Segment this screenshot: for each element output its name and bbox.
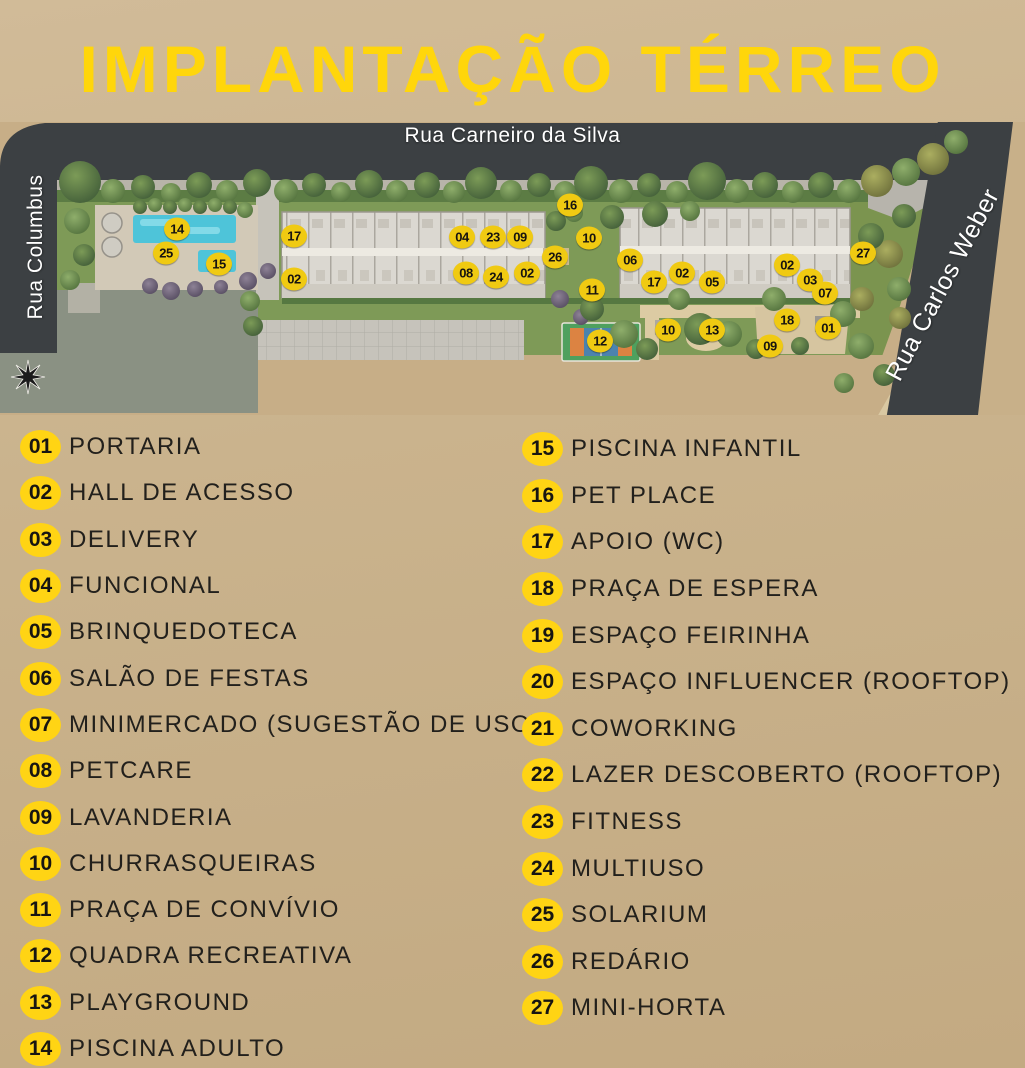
legend-item-14: 14PISCINA ADULTO [20, 1026, 541, 1068]
legend-item-27: 27MINI-HORTA [522, 985, 1011, 1032]
legend-label-24: MULTIUSO [571, 855, 705, 883]
legend-label-18: PRAÇA DE ESPERA [571, 575, 819, 603]
legend-label-03: DELIVERY [69, 526, 199, 554]
legend-label-07: MINIMERCADO (SUGESTÃO DE USO) [69, 711, 541, 739]
map-marker-17: 17 [281, 225, 307, 248]
legend-label-17: APOIO (WC) [571, 528, 725, 556]
legend-badge-07: 07 [20, 708, 61, 742]
legend-badge-16: 16 [522, 479, 563, 513]
legend-label-04: FUNCIONAL [69, 572, 221, 600]
legend-badge-05: 05 [20, 615, 61, 649]
legend-badge-04: 04 [20, 569, 61, 603]
legend-label-02: HALL DE ACESSO [69, 479, 295, 507]
legend-item-18: 18PRAÇA DE ESPERA [522, 566, 1011, 613]
map-marker-02: 02 [774, 254, 800, 277]
legend-badge-20: 20 [522, 665, 563, 699]
map-marker-16: 16 [557, 194, 583, 217]
legend-item-07: 07MINIMERCADO (SUGESTÃO DE USO) [20, 702, 541, 748]
legend-item-10: 10CHURRASQUEIRAS [20, 841, 541, 887]
legend-item-09: 09LAVANDERIA [20, 794, 541, 840]
legend-label-27: MINI-HORTA [571, 994, 726, 1022]
legend-item-06: 06SALÃO DE FESTAS [20, 655, 541, 701]
legend-badge-09: 09 [20, 801, 61, 835]
legend-item-15: 15PISCINA INFANTIL [522, 426, 1011, 473]
legend-item-04: 04FUNCIONAL [20, 563, 541, 609]
legend-badge-11: 11 [20, 893, 61, 927]
legend-label-23: FITNESS [571, 808, 683, 836]
legend-item-03: 03DELIVERY [20, 517, 541, 563]
legend-badge-15: 15 [522, 432, 563, 466]
legend-item-22: 22LAZER DESCOBERTO (ROOFTOP) [522, 752, 1011, 799]
legend-badge-01: 01 [20, 430, 61, 464]
legend-badge-18: 18 [522, 572, 563, 606]
legend-badge-13: 13 [20, 986, 61, 1020]
legend-label-11: PRAÇA DE CONVÍVIO [69, 896, 340, 924]
legend-label-05: BRINQUEDOTECA [69, 618, 298, 646]
legend-item-17: 17APOIO (WC) [522, 519, 1011, 566]
legend-item-19: 19ESPAÇO FEIRINHA [522, 612, 1011, 659]
legend-label-01: PORTARIA [69, 433, 201, 461]
legend-label-12: QUADRA RECREATIVA [69, 942, 352, 970]
map-marker-09: 09 [757, 335, 783, 358]
legend-badge-06: 06 [20, 662, 61, 696]
map-marker-14: 14 [164, 218, 190, 241]
legend-badge-27: 27 [522, 991, 563, 1025]
legend-badge-08: 08 [20, 754, 61, 788]
map-marker-25: 25 [153, 242, 179, 265]
map-marker-10: 10 [655, 319, 681, 342]
map-marker-02: 02 [281, 268, 307, 291]
map-marker-17: 17 [641, 271, 667, 294]
map-markers-layer: 1425151702042309082402161026061117020502… [0, 122, 1025, 415]
map-marker-18: 18 [774, 309, 800, 332]
legend-badge-25: 25 [522, 898, 563, 932]
legend-label-09: LAVANDERIA [69, 804, 233, 832]
legend-item-23: 23FITNESS [522, 799, 1011, 846]
legend-badge-02: 02 [20, 476, 61, 510]
legend-item-26: 26REDÁRIO [522, 939, 1011, 986]
legend-column-left: 01PORTARIA02HALL DE ACESSO03DELIVERY04FU… [20, 424, 541, 1068]
legend-badge-03: 03 [20, 523, 61, 557]
legend-label-14: PISCINA ADULTO [69, 1035, 285, 1063]
page-title: IMPLANTAÇÃO TÉRREO [0, 36, 1025, 102]
legend-label-13: PLAYGROUND [69, 989, 250, 1017]
legend-badge-17: 17 [522, 525, 563, 559]
legend-item-20: 20ESPAÇO INFLUENCER (ROOFTOP) [522, 659, 1011, 706]
legend-label-06: SALÃO DE FESTAS [69, 665, 310, 693]
legend-label-22: LAZER DESCOBERTO (ROOFTOP) [571, 761, 1002, 789]
legend-column-right: 15PISCINA INFANTIL16PET PLACE17APOIO (WC… [522, 426, 1011, 1032]
legend-item-24: 24MULTIUSO [522, 845, 1011, 892]
map-marker-11: 11 [579, 279, 605, 302]
legend-item-16: 16PET PLACE [522, 473, 1011, 520]
legend-badge-19: 19 [522, 619, 563, 653]
legend-label-19: ESPAÇO FEIRINHA [571, 622, 810, 650]
legend-badge-12: 12 [20, 939, 61, 973]
legend-badge-23: 23 [522, 805, 563, 839]
legend-item-08: 08PETCARE [20, 748, 541, 794]
legend-item-25: 25SOLARIUM [522, 892, 1011, 939]
map-marker-15: 15 [206, 253, 232, 276]
map-marker-06: 06 [617, 249, 643, 272]
legend-label-10: CHURRASQUEIRAS [69, 850, 317, 878]
legend-item-01: 01PORTARIA [20, 424, 541, 470]
map-marker-07: 07 [812, 282, 838, 305]
map-marker-02: 02 [514, 262, 540, 285]
legend-item-21: 21COWORKING [522, 706, 1011, 753]
legend-label-25: SOLARIUM [571, 901, 708, 929]
legend-label-20: ESPAÇO INFLUENCER (ROOFTOP) [571, 668, 1011, 696]
map-marker-01: 01 [815, 317, 841, 340]
map-marker-02: 02 [669, 262, 695, 285]
legend-badge-22: 22 [522, 758, 563, 792]
flyer-page: IMPLANTAÇÃO TÉRREO [0, 0, 1025, 1068]
map-marker-23: 23 [480, 226, 506, 249]
legend-badge-24: 24 [522, 852, 563, 886]
legend-label-21: COWORKING [571, 715, 738, 743]
legend-badge-21: 21 [522, 712, 563, 746]
site-plan-map: Rua Carneiro da Silva Rua Columbus Rua C… [0, 122, 1025, 415]
legend-label-15: PISCINA INFANTIL [571, 435, 802, 463]
map-marker-10: 10 [576, 227, 602, 250]
map-marker-26: 26 [542, 246, 568, 269]
legend-item-12: 12QUADRA RECREATIVA [20, 933, 541, 979]
map-marker-12: 12 [587, 330, 613, 353]
legend-badge-14: 14 [20, 1032, 61, 1066]
map-marker-27: 27 [850, 242, 876, 265]
map-marker-05: 05 [699, 271, 725, 294]
legend-badge-26: 26 [522, 945, 563, 979]
legend-label-16: PET PLACE [571, 482, 716, 510]
legend-item-02: 02HALL DE ACESSO [20, 470, 541, 516]
legend-item-11: 11PRAÇA DE CONVÍVIO [20, 887, 541, 933]
map-marker-13: 13 [699, 319, 725, 342]
legend-label-08: PETCARE [69, 757, 193, 785]
legend-item-05: 05BRINQUEDOTECA [20, 609, 541, 655]
legend-badge-10: 10 [20, 847, 61, 881]
legend-label-26: REDÁRIO [571, 948, 691, 976]
legend-item-13: 13PLAYGROUND [20, 980, 541, 1026]
map-marker-04: 04 [449, 226, 475, 249]
map-marker-09: 09 [507, 226, 533, 249]
map-marker-24: 24 [483, 266, 509, 289]
map-marker-08: 08 [453, 262, 479, 285]
